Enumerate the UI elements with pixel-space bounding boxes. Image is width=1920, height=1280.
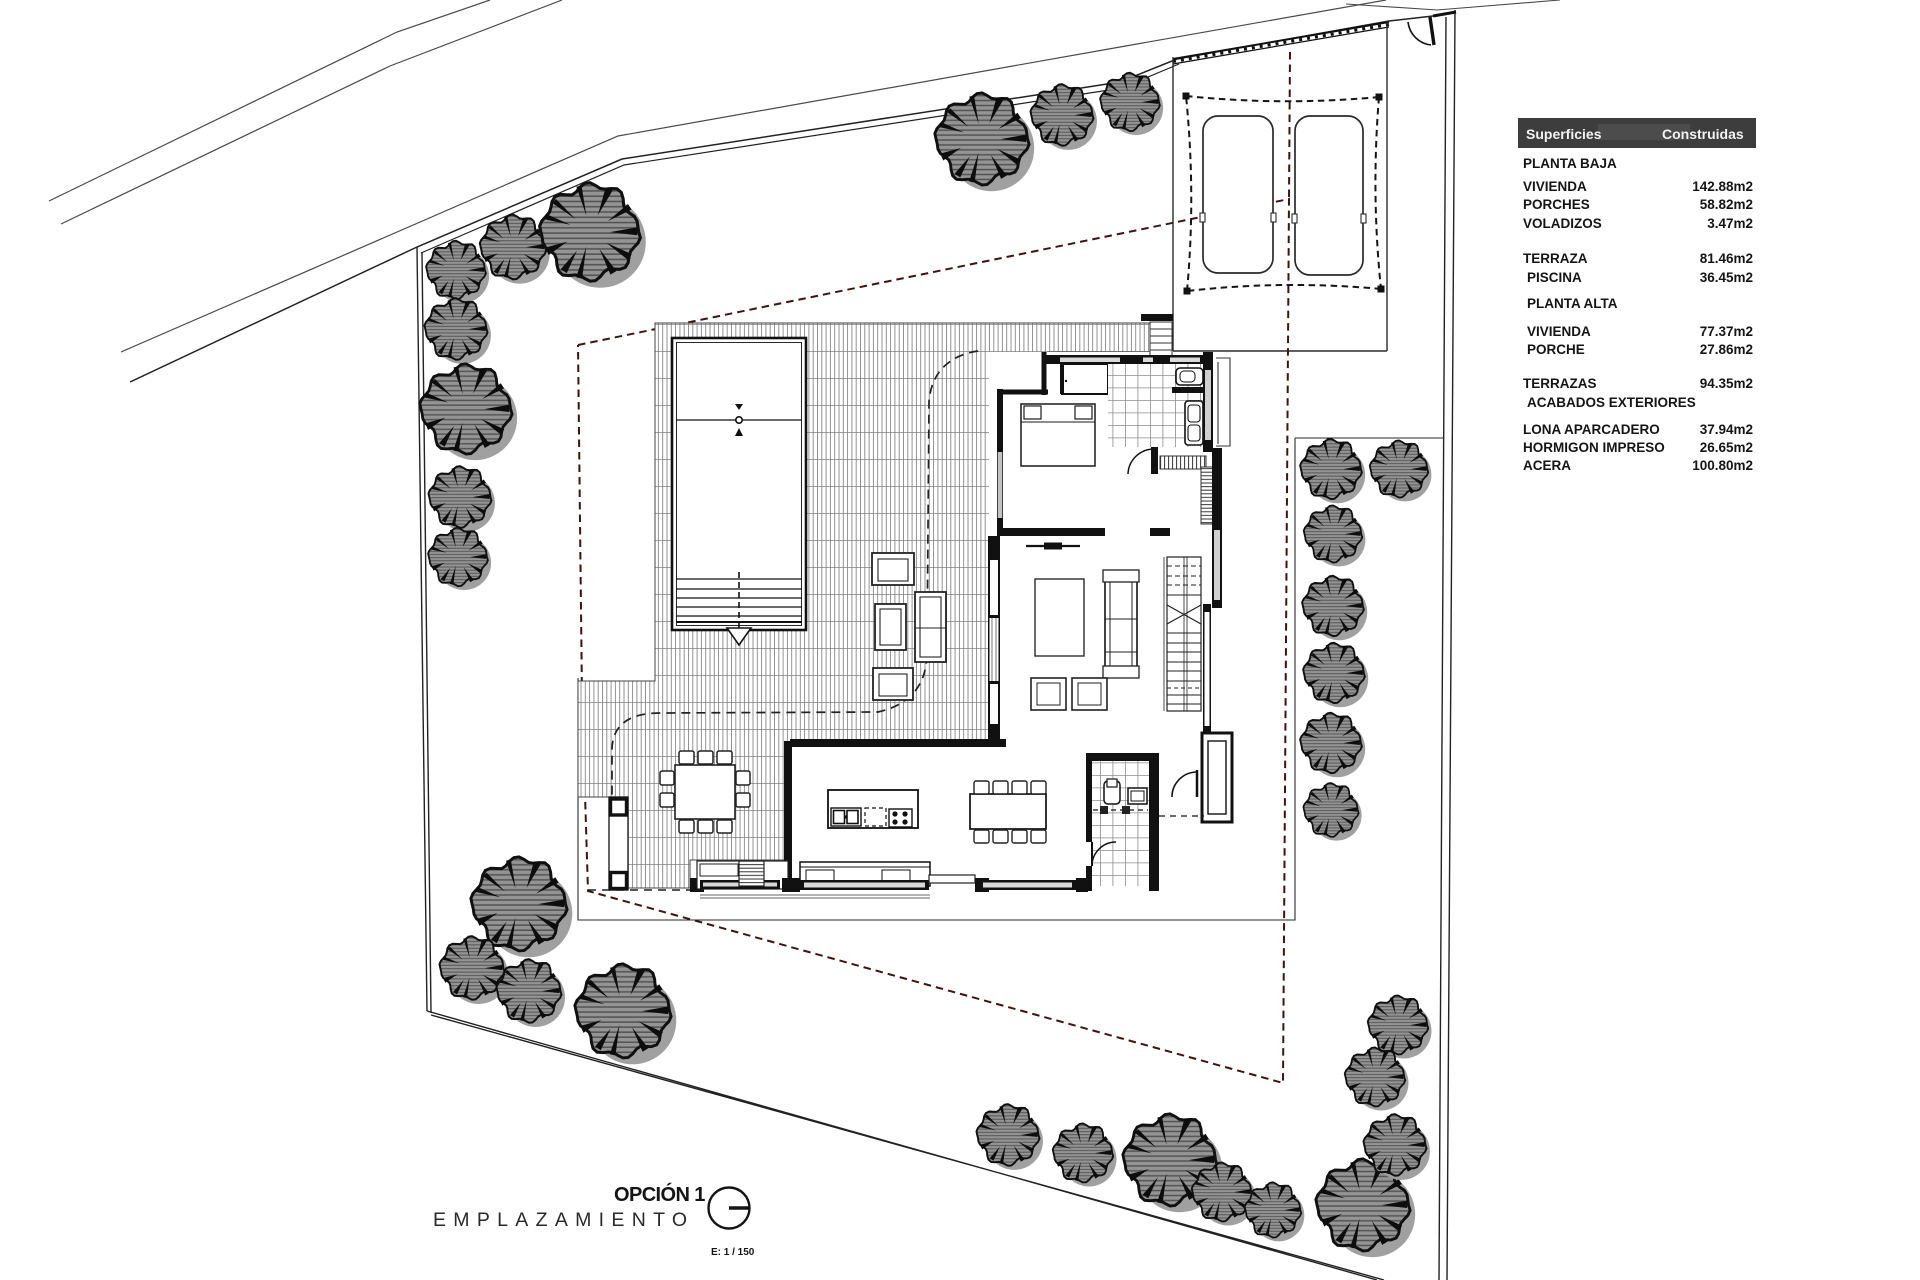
svg-text:ACABADOS EXTERIORES: ACABADOS EXTERIORES (1527, 395, 1696, 410)
svg-text:Superficies: Superficies (1526, 126, 1602, 142)
svg-text:3.47m2: 3.47m2 (1707, 216, 1753, 231)
svg-text:ACERA: ACERA (1523, 458, 1571, 473)
svg-text:PLANTA BAJA: PLANTA BAJA (1523, 156, 1617, 171)
svg-text:VIVIENDA: VIVIENDA (1523, 179, 1587, 194)
svg-text:PORCHE: PORCHE (1527, 342, 1585, 357)
svg-text:27.86m2: 27.86m2 (1700, 342, 1753, 357)
svg-text:PLANTA ALTA: PLANTA ALTA (1527, 296, 1618, 311)
svg-text:36.45m2: 36.45m2 (1700, 270, 1753, 285)
svg-text:26.65m2: 26.65m2 (1700, 440, 1753, 455)
svg-text:PORCHES: PORCHES (1523, 197, 1590, 212)
svg-text:Construidas: Construidas (1662, 126, 1744, 142)
svg-text:VOLADIZOS: VOLADIZOS (1523, 216, 1602, 231)
svg-text:142.88m2: 142.88m2 (1692, 179, 1753, 194)
svg-text:94.35m2: 94.35m2 (1700, 376, 1753, 391)
svg-text:VIVIENDA: VIVIENDA (1527, 324, 1591, 339)
svg-text:TERRAZA: TERRAZA (1523, 251, 1588, 266)
svg-text:81.46m2: 81.46m2 (1700, 251, 1753, 266)
svg-text:E: 1 / 150: E: 1 / 150 (711, 1247, 755, 1258)
svg-text:HORMIGON IMPRESO: HORMIGON IMPRESO (1523, 440, 1665, 455)
svg-text:PISCINA: PISCINA (1527, 270, 1582, 285)
svg-text:58.82m2: 58.82m2 (1700, 197, 1753, 212)
svg-text:LONA APARCADERO: LONA APARCADERO (1523, 422, 1660, 437)
svg-text:77.37m2: 77.37m2 (1700, 324, 1753, 339)
svg-text:EMPLAZAMIENTO: EMPLAZAMIENTO (433, 1209, 694, 1231)
svg-text:OPCIÓN 1: OPCIÓN 1 (614, 1182, 705, 1206)
svg-text:37.94m2: 37.94m2 (1700, 422, 1753, 437)
svg-text:100.80m2: 100.80m2 (1692, 458, 1753, 473)
svg-text:TERRAZAS: TERRAZAS (1523, 376, 1597, 391)
